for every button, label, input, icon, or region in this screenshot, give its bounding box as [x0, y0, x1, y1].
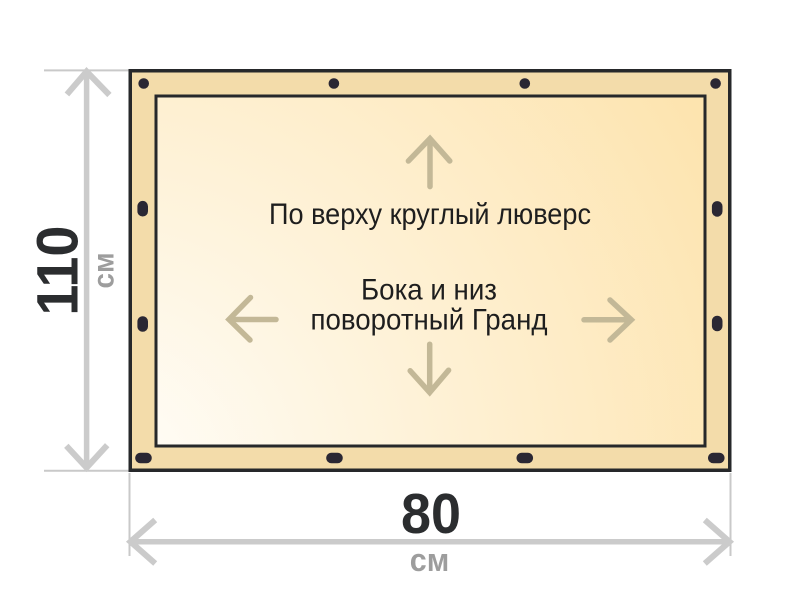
- svg-text:110: 110: [25, 226, 90, 316]
- svg-text:см: см: [88, 253, 121, 289]
- svg-text:Бока и низ: Бока и низ: [361, 273, 497, 306]
- svg-text:см: см: [410, 542, 450, 578]
- svg-text:80: 80: [401, 482, 461, 545]
- svg-text:поворотный Гранд: поворотный Гранд: [311, 303, 548, 336]
- svg-text:По верху круглый люверс: По верху круглый люверс: [269, 198, 591, 231]
